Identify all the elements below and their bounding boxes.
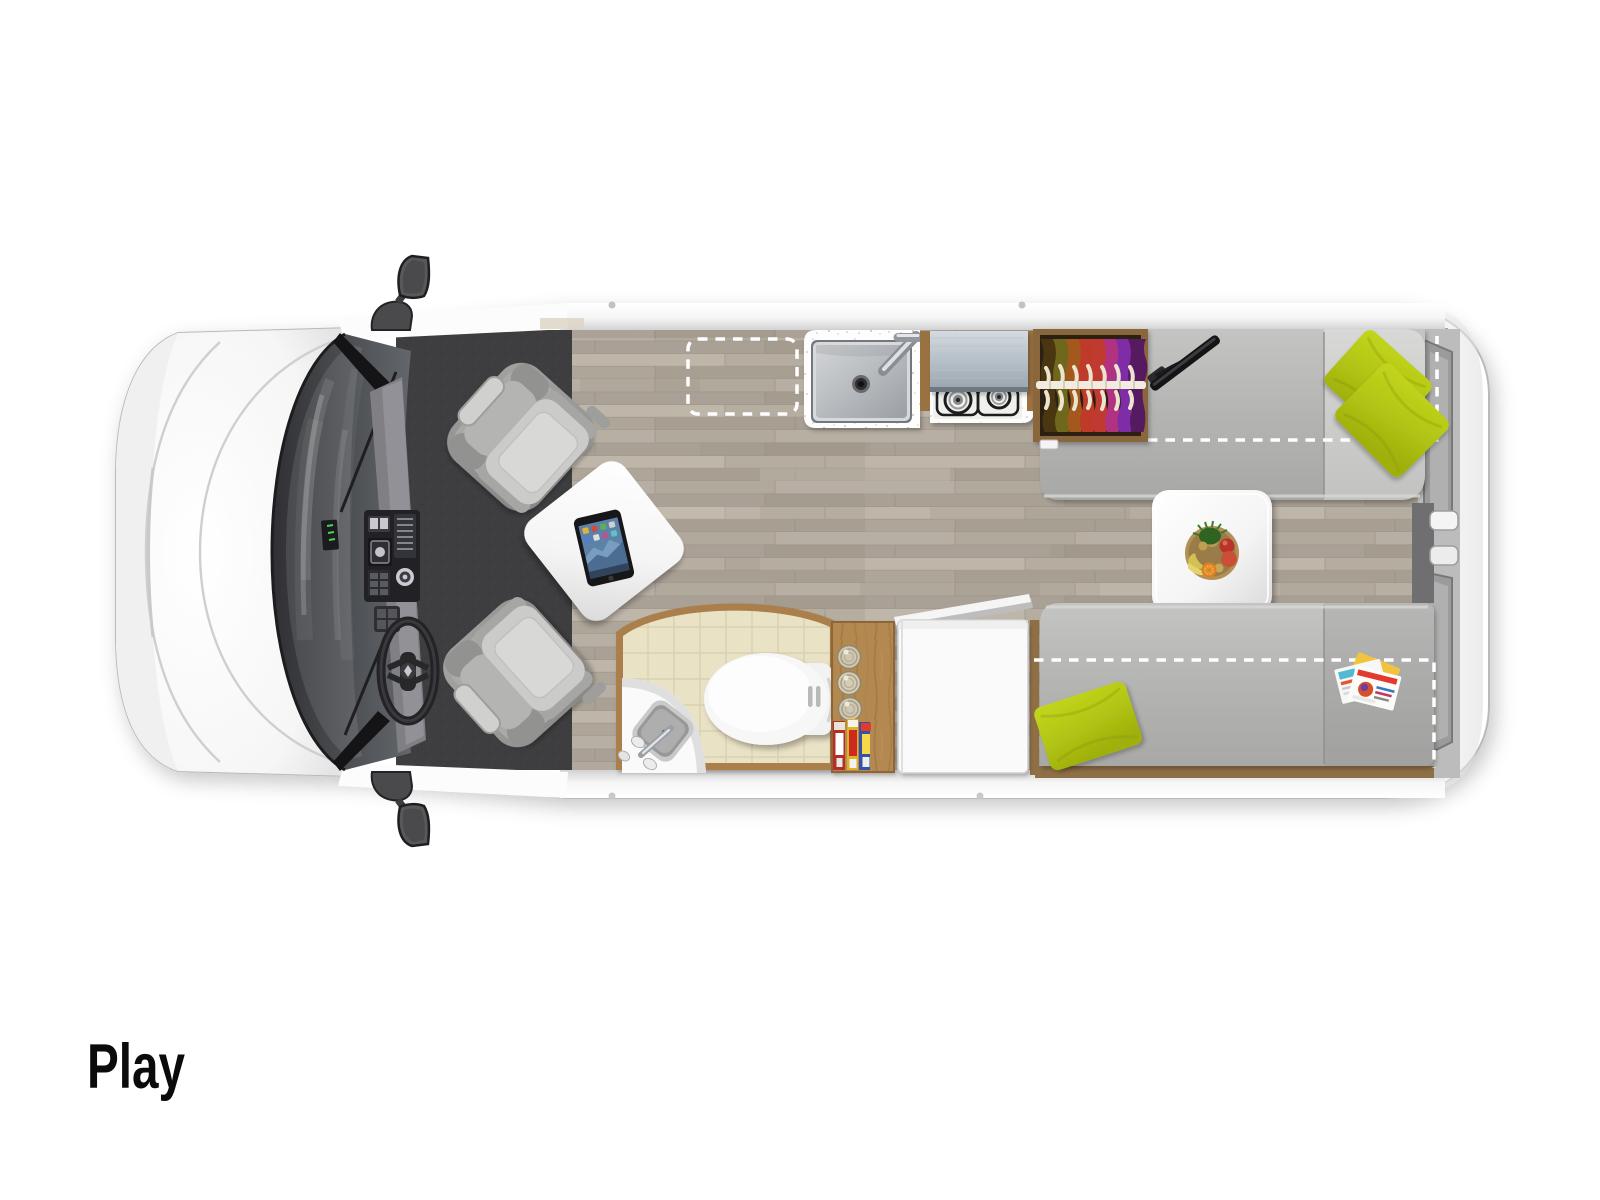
svg-text:Play: Play <box>87 1032 185 1102</box>
